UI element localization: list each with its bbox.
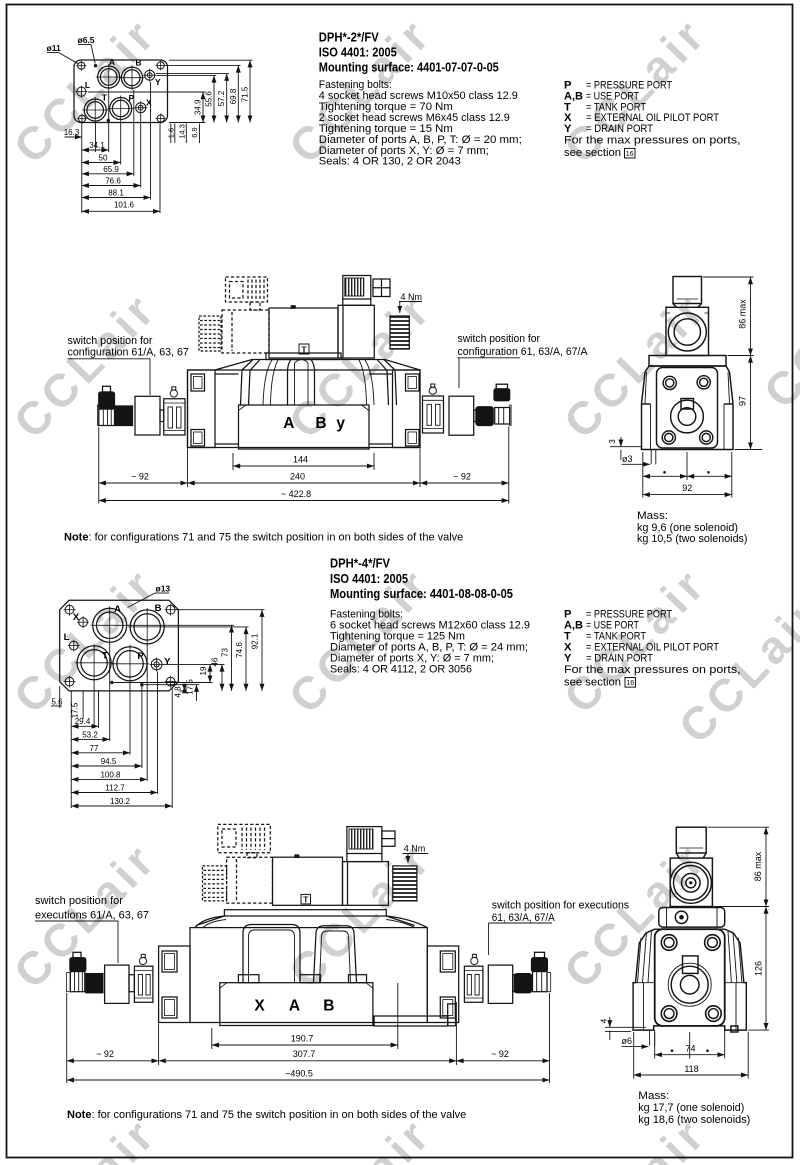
svg-text:kg 10,5 (two solenoids): kg 10,5 (two solenoids) [637, 533, 748, 545]
svg-text:L: L [64, 632, 70, 643]
svg-text:configuration 61/A, 63, 67: configuration 61/A, 63, 67 [68, 346, 189, 358]
svg-text:Mass:: Mass: [638, 1090, 669, 1102]
svg-text:74.6: 74.6 [235, 642, 244, 658]
svg-text:Note: for configurations 71 an: Note: for configurations 71 and 75 the s… [67, 1109, 466, 1121]
svg-text:DPH*-4*/FV: DPH*-4*/FV [330, 556, 390, 571]
svg-text:ø3: ø3 [622, 454, 633, 464]
svg-text:B: B [135, 58, 141, 68]
svg-text:86 max: 86 max [738, 299, 748, 329]
svg-text:switch position for: switch position for [35, 895, 123, 907]
svg-text:L: L [85, 80, 90, 90]
svg-text:190.7: 190.7 [291, 1034, 314, 1044]
svg-text:94.5: 94.5 [101, 757, 117, 766]
svg-text:X: X [73, 612, 80, 623]
svg-text:4 Nm: 4 Nm [401, 292, 423, 302]
svg-text:Mounting surface: 4401-07-07-0: Mounting surface: 4401-07-07-0-05 [319, 60, 499, 75]
svg-text:100.8: 100.8 [100, 770, 121, 779]
svg-text:92.1: 92.1 [251, 633, 260, 649]
svg-text:~ 422.8: ~ 422.8 [281, 489, 311, 499]
svg-text:A: A [283, 415, 294, 432]
svg-text:69.8: 69.8 [229, 88, 238, 104]
svg-text:4 Nm: 4 Nm [404, 844, 426, 854]
svg-text:73: 73 [221, 648, 230, 657]
svg-text:88.1: 88.1 [108, 188, 124, 197]
svg-text:P: P [137, 651, 144, 662]
svg-text:34.1: 34.1 [89, 141, 105, 150]
svg-text:Y: Y [564, 653, 572, 665]
svg-text:55.6: 55.6 [205, 91, 214, 107]
svg-text:ø6.5: ø6.5 [78, 35, 95, 45]
svg-text:144: 144 [293, 455, 308, 465]
svg-text:19: 19 [199, 666, 208, 675]
svg-text:4: 4 [600, 1018, 609, 1023]
svg-text:see section: see section [564, 147, 621, 159]
svg-text:y: y [336, 415, 345, 432]
svg-text:For the max pressures on ports: For the max pressures on ports, [564, 134, 741, 146]
svg-text:65.9: 65.9 [103, 165, 119, 174]
svg-text:71.5: 71.5 [241, 86, 250, 102]
svg-text:77: 77 [90, 744, 99, 753]
svg-text:3: 3 [608, 439, 617, 444]
svg-text:17.5: 17.5 [186, 679, 195, 695]
svg-text:118: 118 [684, 1064, 698, 1074]
svg-text:~ 92: ~ 92 [453, 472, 471, 482]
svg-text:B: B [155, 603, 162, 614]
svg-text:T: T [303, 895, 309, 905]
svg-text:34.9: 34.9 [194, 99, 203, 115]
svg-text:16: 16 [626, 151, 634, 158]
svg-text:= DRAIN PORT: = DRAIN PORT [586, 653, 653, 665]
svg-text:14.3: 14.3 [178, 124, 187, 139]
svg-text:kg 18,6 (two solenoids): kg 18,6 (two solenoids) [638, 1114, 750, 1126]
svg-text:For the max pressures on ports: For the max pressures on ports, [564, 664, 741, 676]
svg-text:5.6: 5.6 [51, 698, 63, 707]
svg-text:76.6: 76.6 [105, 176, 121, 185]
svg-text:ø13: ø13 [156, 584, 171, 594]
svg-text:ISO 4401: 2005: ISO 4401: 2005 [330, 571, 408, 586]
svg-text:Y: Y [164, 657, 171, 668]
svg-text:307.7: 307.7 [293, 1049, 316, 1059]
svg-text:A: A [114, 604, 121, 615]
svg-text:A: A [289, 998, 300, 1015]
svg-text:126: 126 [754, 961, 764, 976]
svg-text:92: 92 [682, 483, 692, 493]
svg-text:B: B [323, 998, 334, 1015]
svg-text:130.2: 130.2 [110, 797, 131, 806]
svg-text:16.3: 16.3 [64, 128, 80, 137]
svg-text:Y: Y [155, 77, 161, 87]
svg-text:Mounting surface: 4401-08-08-0: Mounting surface: 4401-08-08-0-05 [330, 586, 513, 601]
svg-text:46: 46 [211, 657, 220, 666]
svg-text:Seals: 4 OR 130, 2 OR 2043: Seals: 4 OR 130, 2 OR 2043 [319, 156, 461, 168]
svg-text:T: T [102, 92, 108, 102]
svg-text:6.9: 6.9 [190, 127, 199, 137]
svg-text:switch position for executions: switch position for executions [492, 900, 630, 912]
svg-text:kg 17,7 (one solenoid): kg 17,7 (one solenoid) [638, 1102, 744, 1114]
svg-text:T: T [102, 651, 108, 662]
svg-text:ø11: ø11 [47, 43, 61, 53]
svg-text:101.6: 101.6 [114, 200, 135, 209]
svg-text:1.6: 1.6 [167, 128, 176, 138]
svg-text:Y: Y [564, 123, 572, 135]
svg-text:kg 9,6 (one solenoid): kg 9,6 (one solenoid) [637, 522, 738, 534]
svg-text:switch position for: switch position for [458, 333, 541, 345]
svg-text:61, 63/A, 67/A: 61, 63/A, 67/A [492, 912, 556, 924]
svg-text:see section: see section [564, 677, 621, 689]
svg-text:112.7: 112.7 [105, 784, 125, 793]
svg-text:X: X [146, 98, 152, 108]
svg-text:switch position for: switch position for [68, 335, 153, 347]
svg-text:B: B [315, 415, 326, 432]
svg-text:= DRAIN PORT: = DRAIN PORT [586, 123, 653, 135]
svg-text:Note: for configurations 71 an: Note: for configurations 71 and 75 the s… [64, 532, 463, 544]
svg-text:Mass:: Mass: [637, 510, 668, 522]
svg-text:~ 92: ~ 92 [96, 1049, 114, 1059]
svg-text:17.5: 17.5 [71, 702, 80, 718]
svg-text:Seals: 4 OR 4112, 2 OR 3056: Seals: 4 OR 4112, 2 OR 3056 [330, 664, 472, 676]
svg-text:configuration 61, 63/A, 67/A: configuration 61, 63/A, 67/A [458, 346, 589, 358]
svg-text:4.8: 4.8 [174, 686, 183, 698]
svg-text:53.2: 53.2 [82, 730, 98, 739]
svg-text:74: 74 [685, 1044, 695, 1054]
svg-text:~490.5: ~490.5 [285, 1069, 313, 1079]
svg-text:~ 92: ~ 92 [131, 472, 149, 482]
svg-text:X: X [254, 998, 265, 1015]
svg-text:A: A [109, 57, 115, 67]
svg-text:~ 92: ~ 92 [491, 1049, 509, 1059]
svg-text:97: 97 [738, 396, 748, 406]
svg-text:240: 240 [290, 472, 305, 482]
svg-text:DPH*-2*/FV: DPH*-2*/FV [319, 30, 379, 45]
svg-text:57.2: 57.2 [217, 90, 226, 106]
svg-text:50: 50 [99, 154, 108, 163]
svg-text:ø6: ø6 [622, 1036, 633, 1046]
svg-text:16: 16 [626, 680, 634, 687]
svg-text:ISO 4401: 2005: ISO 4401: 2005 [319, 45, 397, 60]
svg-text:86 max: 86 max [753, 851, 763, 881]
svg-text:executions 61/A, 63, 67: executions 61/A, 63, 67 [35, 910, 149, 922]
svg-text:29.4: 29.4 [75, 717, 91, 726]
